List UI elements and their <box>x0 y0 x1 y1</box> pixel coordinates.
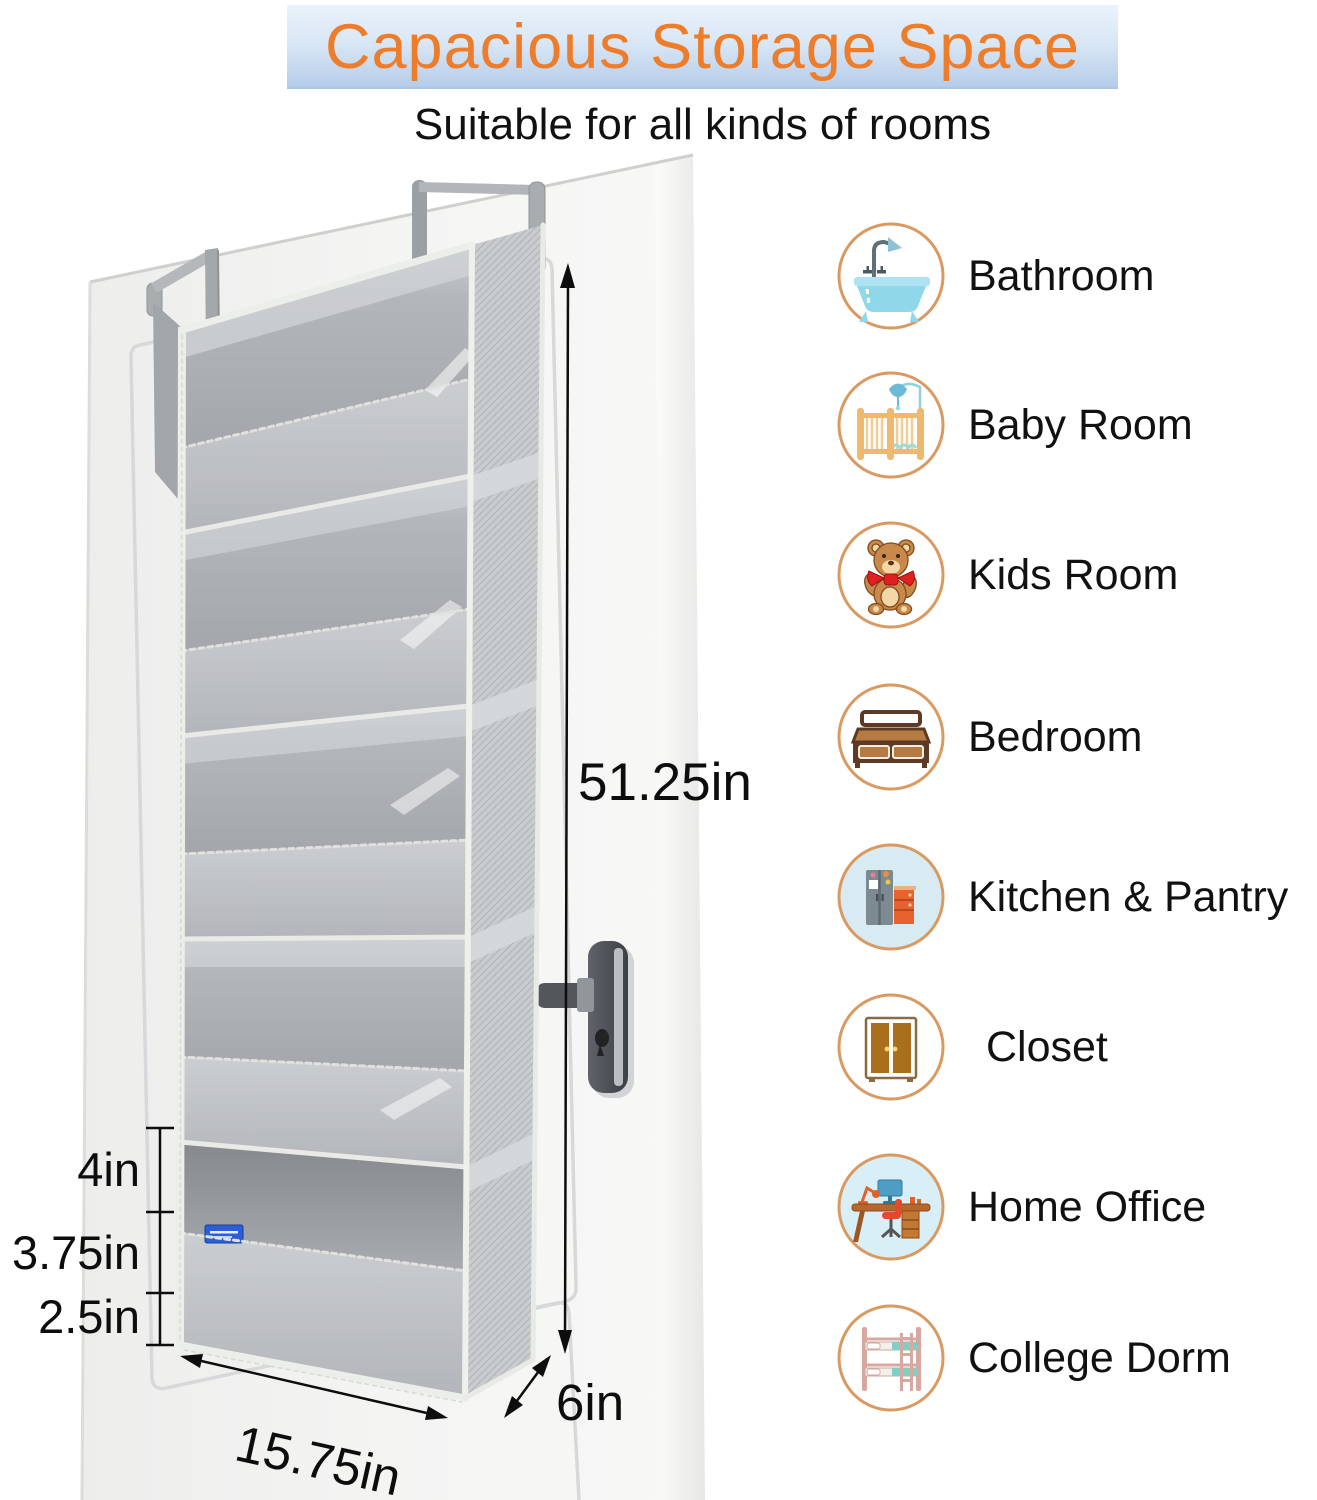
wardrobe-icon <box>836 992 946 1102</box>
room-item-kitchen-pantry: Kitchen & Pantry <box>836 842 1288 952</box>
organizer-front <box>180 245 475 1398</box>
teddy-bear-icon <box>836 520 946 630</box>
height-dimension-label: 51.25in <box>578 753 752 812</box>
room-label: Closet <box>986 1023 1108 1072</box>
depth-dimension-label: 6in <box>556 1374 624 1431</box>
room-label: Kids Room <box>968 551 1178 600</box>
room-item-home-office: Home Office <box>836 1152 1206 1262</box>
bed-icon <box>836 682 946 792</box>
crib-icon <box>836 370 946 480</box>
pocket-top-label: 4in <box>77 1143 140 1196</box>
page-title: Capacious Storage Space <box>325 11 1080 83</box>
pocket-middle-label: 3.75in <box>12 1226 140 1279</box>
room-label: Bedroom <box>968 713 1142 762</box>
fridge-icon <box>836 842 946 952</box>
door-organizer-scene: 51.25in 4in 3.75in 2.5in 15.75in 6in <box>0 140 800 1500</box>
room-item-college-dorm: College Dorm <box>836 1303 1231 1413</box>
organizer-mesh-side <box>465 225 543 1398</box>
desk-icon <box>836 1152 946 1262</box>
pocket-3 <box>181 840 469 939</box>
bathtub-icon <box>836 221 946 331</box>
room-item-closet: Closet <box>836 992 1108 1102</box>
title-banner: Capacious Storage Space <box>287 5 1118 89</box>
hanging-organizer <box>153 225 543 1402</box>
product-infographic: Capacious Storage Space Suitable for all… <box>0 0 1317 1500</box>
bunk-bed-icon <box>836 1303 946 1413</box>
room-label: Baby Room <box>968 401 1193 450</box>
room-item-bathroom: Bathroom <box>836 221 1154 331</box>
room-label: Kitchen & Pantry <box>968 873 1288 922</box>
room-label: Home Office <box>968 1183 1206 1232</box>
room-label: College Dorm <box>968 1334 1231 1383</box>
room-item-bedroom: Bedroom <box>836 682 1142 792</box>
pocket-bottom-label: 2.5in <box>38 1290 140 1343</box>
keyhole <box>595 1029 609 1047</box>
room-item-baby-room: Baby Room <box>836 370 1193 480</box>
room-item-kids-room: Kids Room <box>836 520 1178 630</box>
room-label: Bathroom <box>968 252 1154 301</box>
